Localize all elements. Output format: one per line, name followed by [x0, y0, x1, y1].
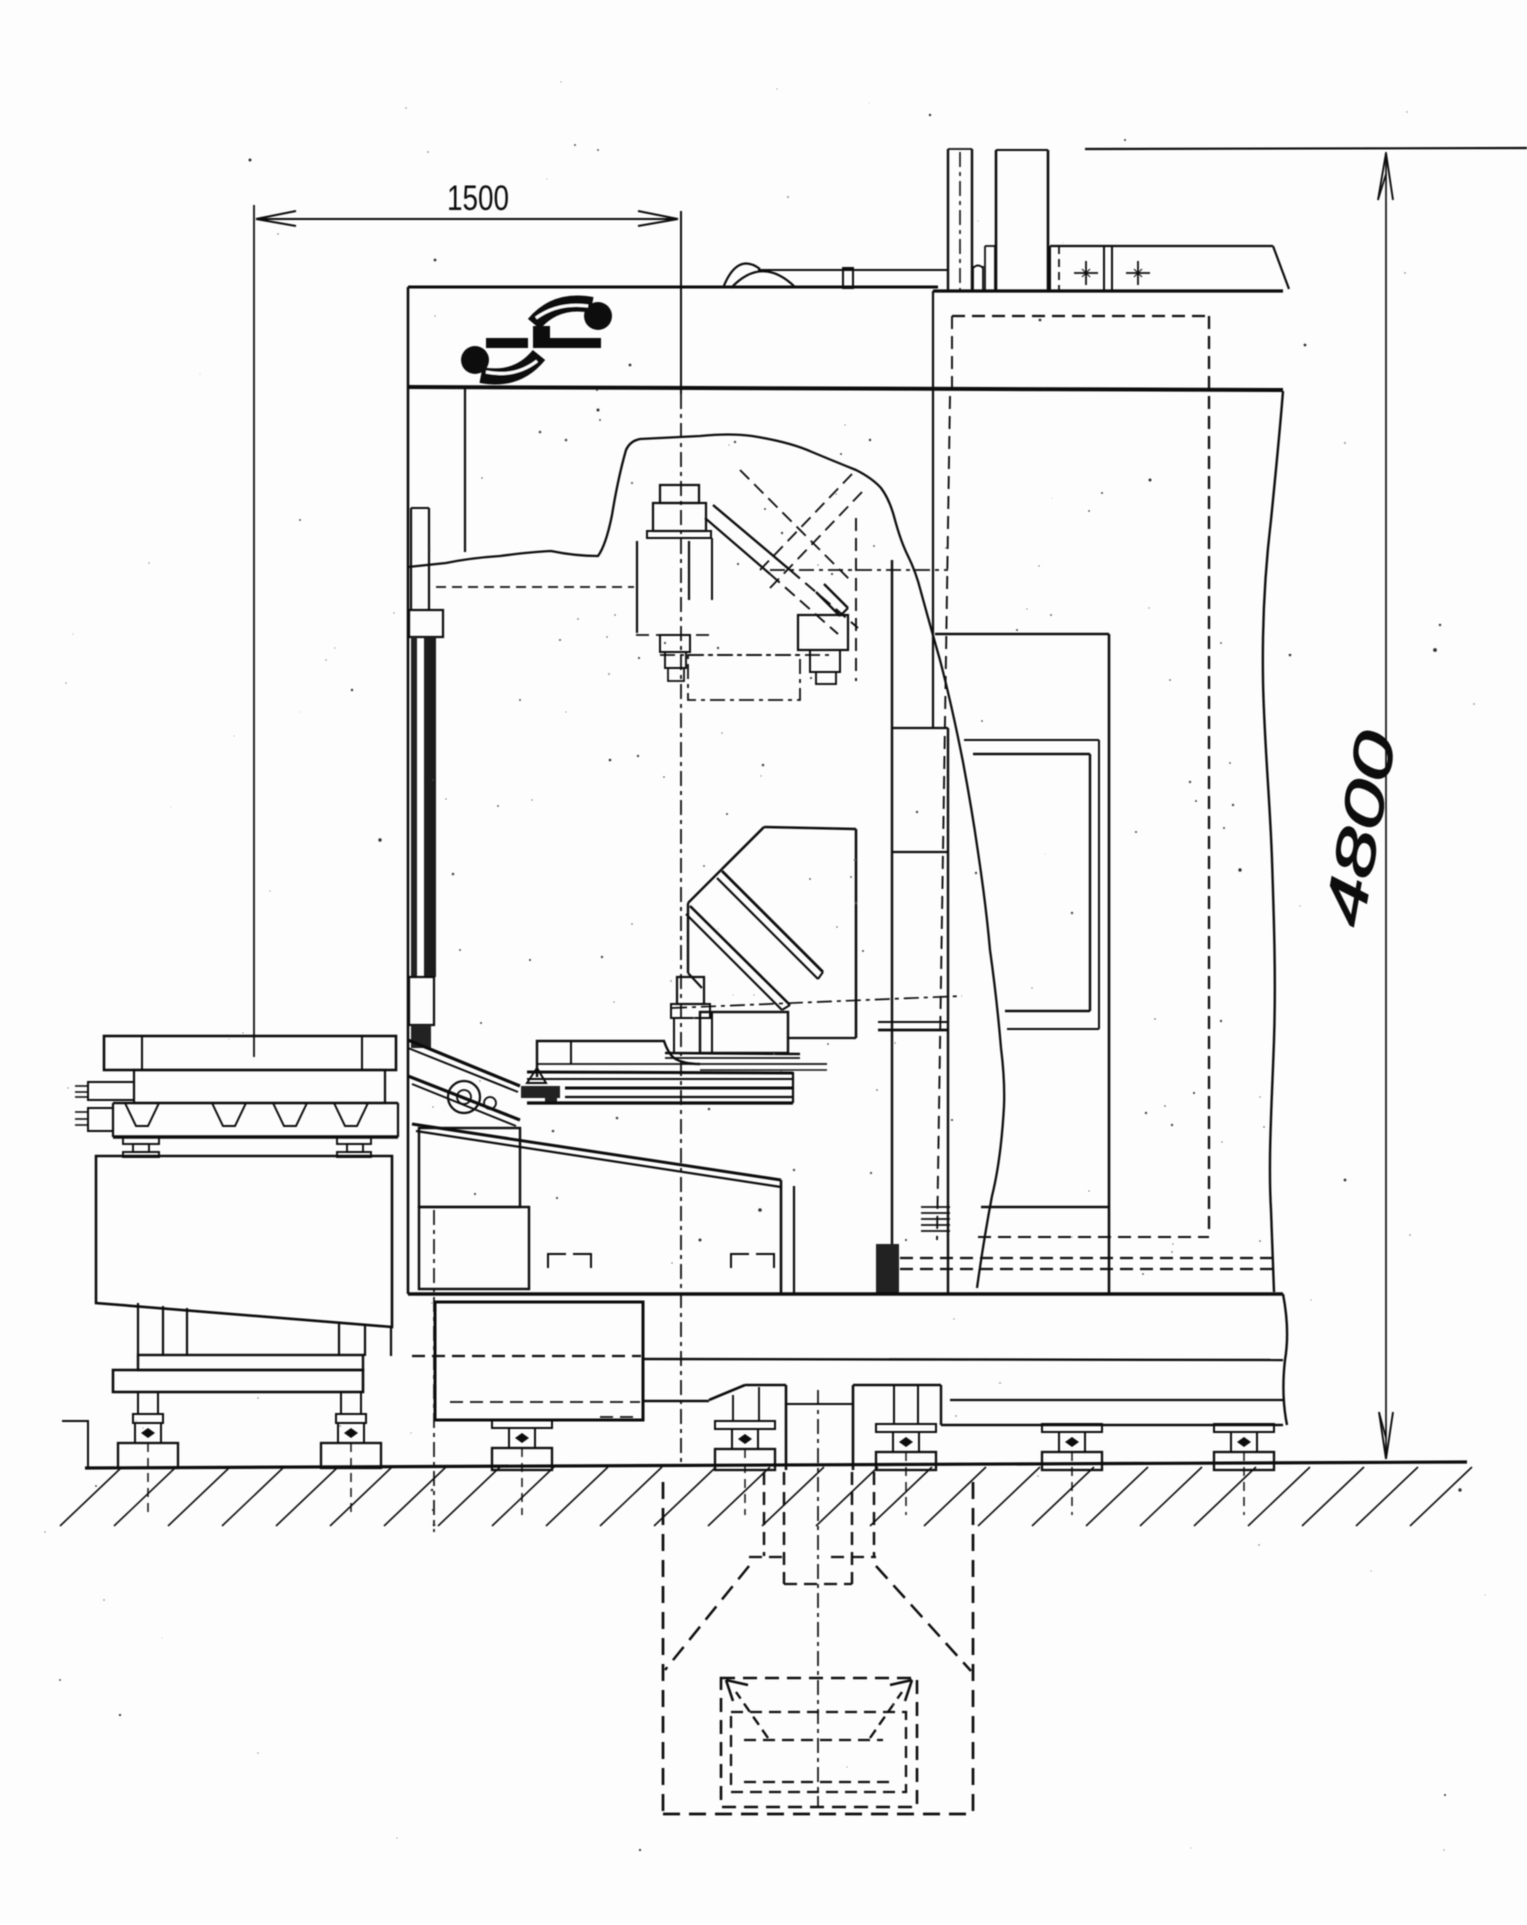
- svg-text:1500: 1500: [447, 179, 509, 218]
